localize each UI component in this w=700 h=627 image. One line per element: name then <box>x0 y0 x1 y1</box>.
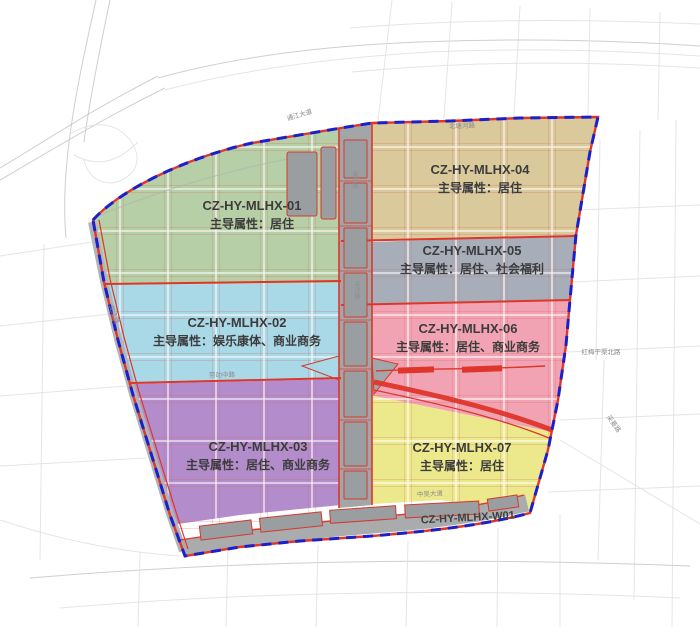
parcel-block <box>344 183 367 223</box>
zone-01-code-label: CZ-HY-MLHX-01 <box>203 198 302 213</box>
zone-06-code-label: CZ-HY-MLHX-06 <box>419 321 518 336</box>
zone-04-code-label: CZ-HY-MLHX-04 <box>431 162 531 177</box>
parcel-block <box>344 371 367 417</box>
parcel-block <box>344 471 367 499</box>
parcel-block <box>344 422 367 466</box>
zone-02-code-label: CZ-HY-MLHX-02 <box>188 315 287 330</box>
parcel-block <box>344 228 367 268</box>
zone-06-attribute-label: 主导属性：居住、商业商务 <box>396 339 541 354</box>
zone-01-attribute-label: 主导属性：居住 <box>210 216 294 231</box>
zone-05-code-label: CZ-HY-MLHX-05 <box>423 243 522 258</box>
zoning-map: 通江大道 北塘河路 红梅干渠北路 采菱路 中吴大道 龙江路 青洋路 青洋路 劳动… <box>0 0 700 627</box>
zone-03-code-label: CZ-HY-MLHX-03 <box>209 439 308 454</box>
parcel-block <box>344 322 367 366</box>
road-label-tongjiang: 通江大道 <box>286 106 314 122</box>
zone-05-attribute-label: 主导属性：居住、社会福利 <box>400 261 544 276</box>
road-label-qingyang-lower: 青洋路 <box>353 280 360 300</box>
zone-03-attribute-label: 主导属性：居住、商业商务 <box>186 457 331 472</box>
zoning-map-page: 通江大道 北塘河路 红梅干渠北路 采菱路 中吴大道 龙江路 青洋路 青洋路 劳动… <box>0 0 700 627</box>
zone-02-attribute-label: 主导属性：娱乐康体、商业商务 <box>153 333 322 348</box>
zone-07-attribute-label: 主导属性：居住 <box>420 458 504 473</box>
parcel-block <box>321 147 336 219</box>
zone-04-attribute-label: 主导属性：居住 <box>438 180 522 195</box>
zone-07-code-label: CZ-HY-MLHX-07 <box>413 440 512 455</box>
road-label-cailing: 采菱路 <box>605 413 624 435</box>
road-label-qingyang-upper: 青洋路 <box>351 170 358 190</box>
road-label-hongmeiganqu: 红梅干渠北路 <box>582 347 622 356</box>
road-label-laodong: 劳动中路 <box>209 370 236 379</box>
